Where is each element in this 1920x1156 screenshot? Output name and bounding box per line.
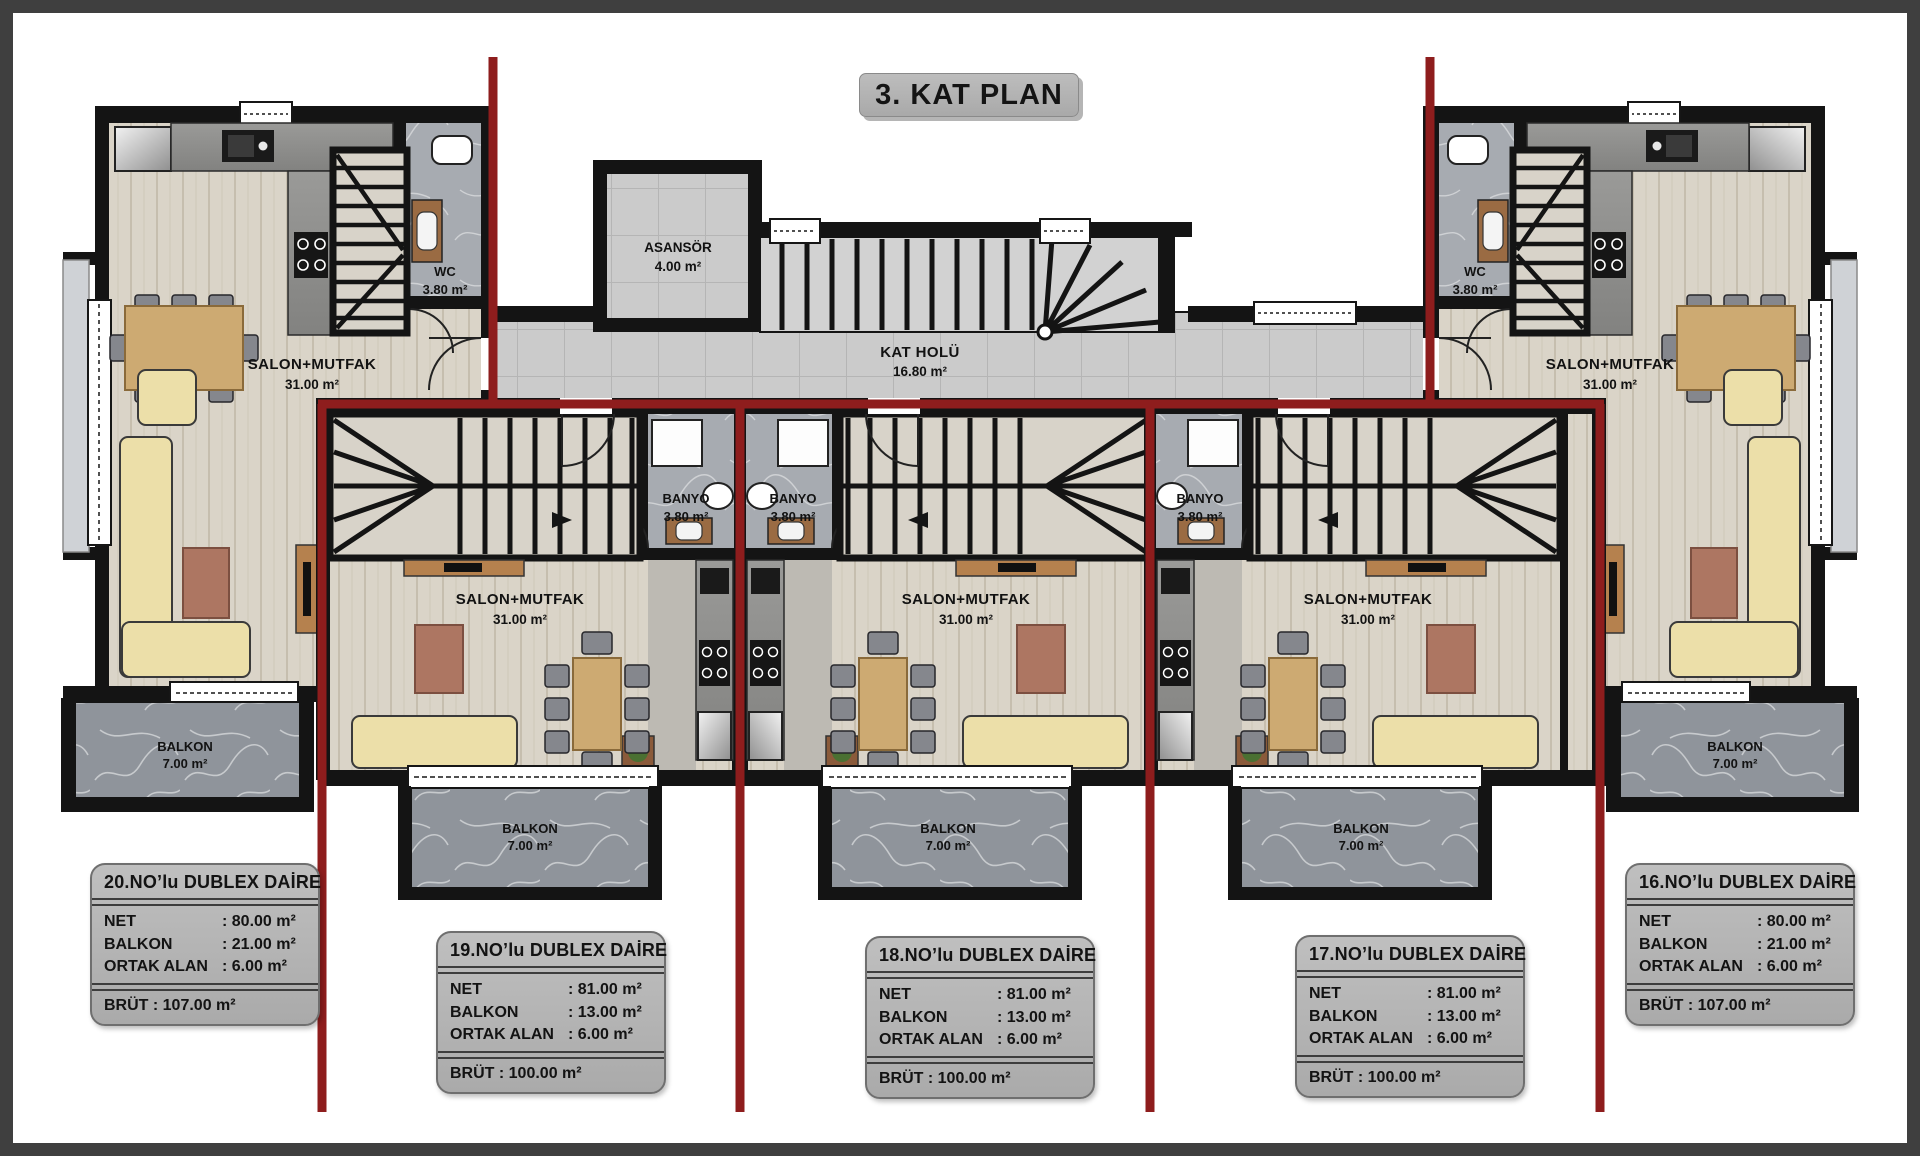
label-balkon-20-area: 7.00 m²: [163, 756, 208, 771]
apartment-card-title: 17.NO’lu DUBLEX DAİRE: [1309, 944, 1511, 965]
label-salon-18: SALON+MUTFAK: [902, 591, 1031, 608]
row-value: : 13.00 m²: [1427, 1006, 1501, 1029]
label-salon-19-area: 31.00 m²: [493, 612, 548, 627]
label-banyo-19: BANYO: [663, 491, 710, 506]
balcony-door: [170, 682, 298, 704]
duplex-stairs: [330, 414, 640, 558]
label-banyo-17: BANYO: [1177, 491, 1224, 506]
side-window: [88, 300, 111, 545]
toilet: [432, 136, 472, 164]
label-wc-left-area: 3.80 m²: [423, 282, 468, 297]
brut-total: BRÜT : 100.00 m²: [1309, 1063, 1511, 1087]
fridge: [698, 712, 731, 760]
row-value: : 81.00 m²: [568, 979, 642, 1002]
kitchen-floor: [648, 548, 696, 770]
apartment-card-title: 19.NO’lu DUBLEX DAİRE: [450, 940, 652, 961]
card-row: ORTAK ALAN: 6.00 m²: [1309, 1028, 1511, 1051]
hall-wall: [493, 306, 595, 322]
brut-total: BRÜT : 100.00 m²: [879, 1064, 1081, 1088]
stove: [294, 232, 328, 278]
row-label: BALKON: [450, 1002, 568, 1025]
separator: [438, 966, 664, 974]
card-row: NET: 81.00 m²: [450, 979, 652, 1002]
row-value: : 80.00 m²: [1757, 911, 1831, 934]
label-salon-19: SALON+MUTFAK: [456, 591, 585, 608]
label-salon-16: SALON+MUTFAK: [1546, 356, 1675, 373]
card-row: ORTAK ALAN: 6.00 m²: [450, 1024, 652, 1047]
dining-table: [573, 658, 621, 750]
separator: [1627, 983, 1853, 991]
row-value: : 81.00 m²: [1427, 983, 1501, 1006]
rug: [415, 625, 463, 693]
row-value: : 6.00 m²: [997, 1029, 1062, 1052]
rug: [183, 548, 229, 618]
label-wc-left: WC: [434, 264, 456, 279]
card-row: NET: 80.00 m²: [1639, 911, 1841, 934]
sink: [222, 130, 274, 162]
row-label: NET: [879, 984, 997, 1007]
row-label: NET: [1309, 983, 1427, 1006]
row-label: BALKON: [879, 1007, 997, 1030]
row-label: NET: [1639, 911, 1757, 934]
row-value: : 80.00 m²: [222, 911, 296, 934]
row-value: : 21.00 m²: [222, 934, 296, 957]
kitchen: [696, 560, 733, 760]
armchair: [138, 370, 196, 425]
balcony: [61, 698, 314, 812]
sofa: [122, 622, 250, 677]
label-salon-17-area: 31.00 m²: [1341, 612, 1396, 627]
label-kat-holu-area: 16.80 m²: [893, 364, 948, 379]
card-row: ORTAK ALAN: 6.00 m²: [1639, 956, 1841, 979]
label-balkon-17-area: 7.00 m²: [1339, 838, 1384, 853]
apartment-card-title: 20.NO’lu DUBLEX DAİRE: [104, 872, 306, 893]
apartment-card-title: 18.NO’lu DUBLEX DAİRE: [879, 945, 1081, 966]
brut-total: BRÜT : 100.00 m²: [450, 1059, 652, 1083]
separator: [867, 971, 1093, 979]
label-balkon-18-area: 7.00 m²: [926, 838, 971, 853]
common-area: [493, 160, 1472, 407]
separator: [1297, 1055, 1523, 1063]
sink: [700, 568, 729, 594]
apartment-card-16: 16.NO’lu DUBLEX DAİRE NET: 80.00 m² BALK…: [1625, 863, 1855, 1026]
label-asansor: ASANSÖR: [644, 240, 712, 255]
row-value: : 13.00 m²: [997, 1007, 1071, 1030]
row-value: : 21.00 m²: [1757, 934, 1831, 957]
row-value: : 13.00 m²: [568, 1002, 642, 1025]
duplex-stairs: [333, 150, 407, 333]
row-label: ORTAK ALAN: [879, 1029, 997, 1052]
label-balkon-16: BALKON: [1707, 739, 1763, 754]
label-salon-17: SALON+MUTFAK: [1304, 591, 1433, 608]
fridge: [115, 127, 171, 171]
label-salon-20-area: 31.00 m²: [285, 377, 340, 392]
separator: [1627, 898, 1853, 906]
row-label: BALKON: [104, 934, 222, 957]
separator: [867, 1056, 1093, 1064]
row-label: ORTAK ALAN: [104, 956, 222, 979]
separator: [438, 1051, 664, 1059]
main-staircase: [760, 219, 1192, 339]
label-balkon-20: BALKON: [157, 739, 213, 754]
row-label: ORTAK ALAN: [1309, 1028, 1427, 1051]
card-row: BALKON: 13.00 m²: [450, 1002, 652, 1025]
row-value: : 6.00 m²: [1427, 1028, 1492, 1051]
label-banyo-18: BANYO: [770, 491, 817, 506]
apartment-card-title: 16.NO’lu DUBLEX DAİRE: [1639, 872, 1841, 893]
label-asansor-area: 4.00 m²: [655, 259, 702, 274]
card-row: ORTAK ALAN: 6.00 m²: [104, 956, 306, 979]
label-kat-holu: KAT HOLÜ: [880, 344, 960, 361]
label-wc-right-area: 3.80 m²: [1453, 282, 1498, 297]
apartment-card-19: 19.NO’lu DUBLEX DAİRE NET: 81.00 m² BALK…: [436, 931, 666, 1094]
card-row: NET: 81.00 m²: [1309, 983, 1511, 1006]
tv-unit: [404, 560, 524, 576]
row-label: NET: [450, 979, 568, 1002]
bay-sill: [63, 260, 89, 552]
apartment-card-18: 18.NO’lu DUBLEX DAİRE NET: 81.00 m² BALK…: [865, 936, 1095, 1099]
shower: [652, 420, 702, 466]
row-value: : 81.00 m²: [997, 984, 1071, 1007]
separator: [1297, 970, 1523, 978]
label-balkon-17: BALKON: [1333, 821, 1389, 836]
label-salon-20: SALON+MUTFAK: [248, 356, 377, 373]
label-balkon-18: BALKON: [920, 821, 976, 836]
row-label: BALKON: [1309, 1006, 1427, 1029]
page-title: 3. KAT PLAN: [859, 73, 1079, 117]
card-row: BALKON: 13.00 m²: [1309, 1006, 1511, 1029]
sofa: [352, 716, 517, 768]
card-row: BALKON: 21.00 m²: [104, 934, 306, 957]
card-row: BALKON: 13.00 m²: [879, 1007, 1081, 1030]
row-label: ORTAK ALAN: [1639, 956, 1757, 979]
row-label: BALKON: [1639, 934, 1757, 957]
balcony-door: [408, 766, 658, 788]
separator: [92, 983, 318, 991]
brut-total: BRÜT : 107.00 m²: [1639, 991, 1841, 1015]
row-value: : 6.00 m²: [568, 1024, 633, 1047]
row-label: NET: [104, 911, 222, 934]
card-row: ORTAK ALAN: 6.00 m²: [879, 1029, 1081, 1052]
apartment-card-17: 17.NO’lu DUBLEX DAİRE NET: 81.00 m² BALK…: [1295, 935, 1525, 1098]
card-row: NET: 80.00 m²: [104, 911, 306, 934]
apartment-card-20: 20.NO’lu DUBLEX DAİRE NET: 80.00 m² BALK…: [90, 863, 320, 1026]
label-banyo-17-area: 3.80 m²: [1178, 509, 1223, 524]
card-row: BALKON: 21.00 m²: [1639, 934, 1841, 957]
row-label: ORTAK ALAN: [450, 1024, 568, 1047]
label-balkon-19: BALKON: [502, 821, 558, 836]
separator: [92, 898, 318, 906]
label-salon-18-area: 31.00 m²: [939, 612, 994, 627]
brut-total: BRÜT : 107.00 m²: [104, 991, 306, 1015]
label-balkon-19-area: 7.00 m²: [508, 838, 553, 853]
label-salon-16-area: 31.00 m²: [1583, 377, 1638, 392]
card-row: NET: 81.00 m²: [879, 984, 1081, 1007]
label-balkon-16-area: 7.00 m²: [1713, 756, 1758, 771]
stove: [699, 640, 730, 686]
row-value: : 6.00 m²: [1757, 956, 1822, 979]
hall-window: [1254, 302, 1356, 324]
floor-plan-sheet: ASANSÖR 4.00 m² KAT HOLÜ 16.80 m² WC 3.8…: [0, 0, 1920, 1156]
label-banyo-19-area: 3.80 m²: [664, 509, 709, 524]
label-wc-right: WC: [1464, 264, 1486, 279]
row-value: : 6.00 m²: [222, 956, 287, 979]
label-banyo-18-area: 3.80 m²: [771, 509, 816, 524]
